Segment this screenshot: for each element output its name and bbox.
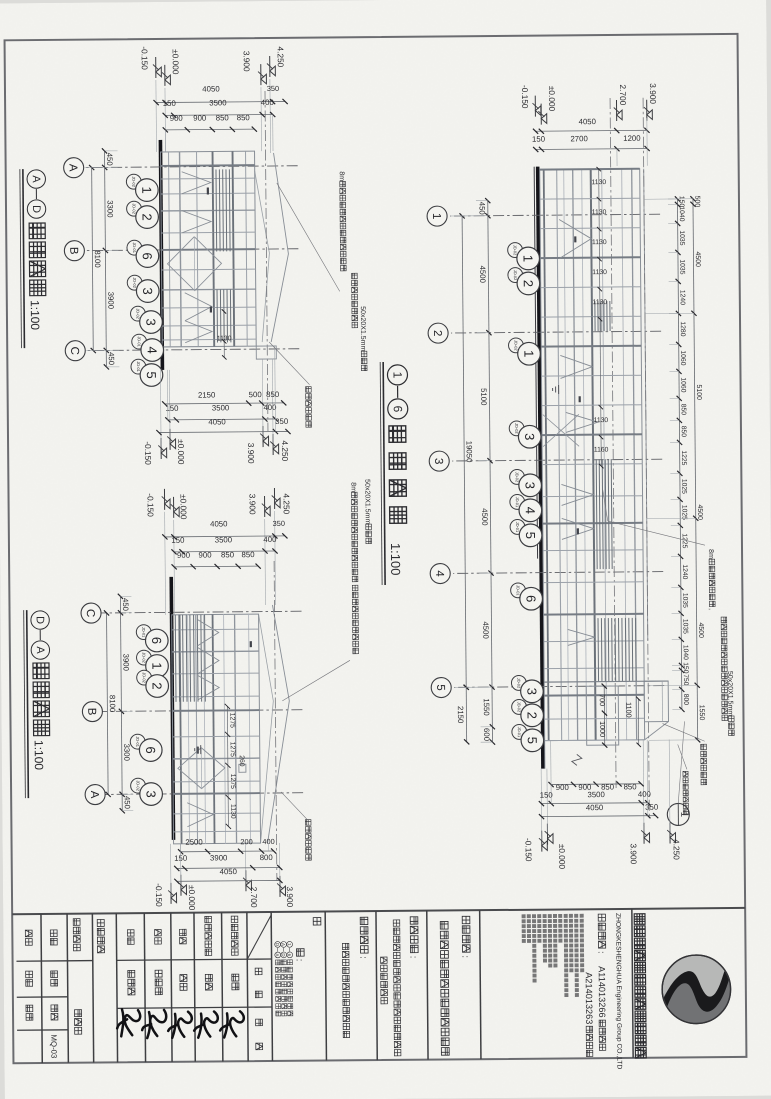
svg-text:4050: 4050 [220,867,238,876]
svg-text:750: 750 [682,674,689,686]
svg-text:150: 150 [174,854,188,863]
svg-text:3.900: 3.900 [246,443,256,464]
svg-text:8100: 8100 [93,250,102,268]
svg-text:850: 850 [241,550,255,559]
svg-text:2: 2 [139,213,154,220]
svg-text:A: A [275,953,280,956]
svg-text:A: A [34,646,46,654]
svg-text:4: 4 [523,507,538,514]
svg-text:D: D [34,616,46,624]
svg-text:3: 3 [432,458,444,465]
svg-text:900: 900 [556,783,570,792]
svg-text:4: 4 [145,346,160,353]
svg-text:2150: 2150 [198,390,216,399]
svg-text:1: 1 [521,255,536,262]
svg-text:900: 900 [177,551,191,560]
svg-text:900: 900 [193,114,207,123]
svg-text:6: 6 [391,405,405,412]
svg-text:JD-01: JD-01 [132,242,137,252]
svg-text:4500: 4500 [696,504,703,520]
svg-text:200: 200 [240,837,252,846]
svg-text:400: 400 [261,98,275,107]
svg-text:3300: 3300 [105,200,114,218]
svg-text:1275: 1275 [229,774,236,789]
svg-text:JD-01: JD-01 [136,361,141,371]
svg-text:1130: 1130 [593,299,608,306]
svg-text:900: 900 [198,551,212,560]
svg-text:1040: 1040 [682,645,689,660]
svg-text:4500: 4500 [694,251,701,267]
svg-text:2.700: 2.700 [618,84,628,105]
svg-text:3.900: 3.900 [242,51,252,72]
svg-text:850: 850 [680,426,687,438]
svg-text:850: 850 [237,113,251,122]
svg-text:2: 2 [150,682,165,689]
svg-text:B: B [85,708,97,716]
svg-text:-0.150: -0.150 [146,493,156,517]
svg-text:450: 450 [123,796,132,810]
svg-text:1130: 1130 [592,239,607,246]
svg-text:3: 3 [522,433,537,440]
svg-text:800: 800 [682,694,689,706]
svg-text:1: 1 [149,662,164,669]
svg-text:6: 6 [143,746,158,753]
svg-text:±0.000: ±0.000 [187,885,197,911]
svg-text:3300: 3300 [122,744,131,762]
svg-text:800: 800 [260,853,274,862]
svg-text:JD-02: JD-02 [132,203,137,213]
svg-text:ZHONGKESHENGHUA Engineering Gr: ZHONGKESHENGHUA Engineering Group CO.,LT… [614,913,622,1070]
svg-text::: : [597,951,607,954]
svg-text:6: 6 [140,252,155,259]
svg-text:1130: 1130 [592,209,607,216]
svg-text:JD-01: JD-01 [135,736,140,746]
svg-text:350: 350 [273,519,285,528]
svg-text:150: 150 [171,536,185,545]
svg-text:JD-02: JD-02 [131,176,136,186]
svg-text:1: 1 [678,812,689,817]
svg-text:1025: 1025 [680,479,687,494]
svg-text:1: 1 [521,350,536,357]
svg-text:3: 3 [523,482,538,489]
svg-text:-0.150: -0.150 [143,441,153,465]
svg-text:260: 260 [238,755,245,767]
svg-text:JD-02: JD-02 [516,678,521,688]
svg-text:3.900: 3.900 [648,83,658,104]
svg-text:850: 850 [680,404,687,416]
svg-text:JD-02: JD-02 [517,702,522,712]
svg-text:5: 5 [525,737,540,744]
svg-text:JD-02: JD-02 [135,308,140,318]
svg-text:JD-02: JD-02 [141,652,146,662]
svg-text:3: 3 [140,287,155,294]
svg-text:JD-02: JD-02 [513,270,518,280]
svg-text:D: D [281,953,286,956]
svg-text:JD-01: JD-01 [141,627,146,637]
svg-text:50x20X1.5mm: 50x20X1.5mm [359,306,366,351]
svg-text:5: 5 [144,371,159,378]
svg-text:JD-02: JD-02 [515,472,520,482]
svg-text:1200: 1200 [623,134,641,143]
svg-text:1240: 1240 [679,290,686,305]
svg-text:MQ-03: MQ-03 [49,1034,58,1058]
svg-text::: : [408,956,419,959]
svg-text:150: 150 [682,662,689,674]
svg-text:5: 5 [523,532,538,539]
svg-text:6: 6 [149,637,164,644]
svg-text:JD-01: JD-01 [515,522,520,532]
svg-text:1550: 1550 [482,698,491,716]
svg-text:2.700: 2.700 [249,887,259,908]
svg-text:600: 600 [482,728,491,742]
svg-text:4050: 4050 [202,84,220,93]
svg-text:1130: 1130 [592,269,607,276]
svg-text:1: 1 [139,186,154,193]
svg-text:4.250: 4.250 [280,440,290,461]
svg-text:8100: 8100 [108,695,117,713]
svg-text:1035: 1035 [681,619,688,634]
svg-text:,: , [708,608,715,610]
svg-text:3.900: 3.900 [285,886,295,907]
svg-text:19050: 19050 [465,441,474,463]
svg-text:450: 450 [107,352,116,366]
svg-text:-0.150: -0.150 [524,838,534,862]
svg-text:4.250: 4.250 [282,493,292,514]
svg-text:±0.000: ±0.000 [179,494,189,520]
svg-text:5100: 5100 [479,388,488,406]
svg-text:2500: 2500 [185,838,203,847]
svg-text:1130: 1130 [591,179,606,186]
svg-text:4: 4 [433,570,445,577]
svg-text:2700: 2700 [570,134,588,143]
svg-text:1275: 1275 [228,713,235,728]
svg-text:C: C [84,609,96,617]
svg-text:1035: 1035 [678,259,685,274]
svg-text:1280: 1280 [679,321,686,336]
svg-text:450: 450 [477,202,486,216]
svg-text:1: 1 [430,213,442,220]
svg-text:850: 850 [266,390,280,399]
svg-text:3900: 3900 [106,292,115,310]
svg-text:8m: 8m [707,549,714,559]
svg-text:3.900: 3.900 [629,843,639,864]
svg-text:900: 900 [170,114,184,123]
svg-text:1:100: 1:100 [388,543,403,576]
svg-text:1550: 1550 [698,705,705,721]
svg-text:1025: 1025 [680,505,687,520]
svg-text:1:100: 1:100 [28,300,42,330]
svg-text:700: 700 [598,694,607,706]
svg-text:3.900: 3.900 [248,494,258,515]
svg-text:8m: 8m [349,482,356,492]
svg-text:2150: 2150 [456,706,465,724]
svg-text:D: D [30,205,42,213]
svg-text:2: 2 [521,280,536,287]
svg-text:JD-02: JD-02 [142,672,147,682]
svg-text:JD-01: JD-01 [515,497,520,507]
svg-text:400: 400 [263,535,277,544]
svg-text:1060: 1060 [679,377,686,392]
svg-text:4.250: 4.250 [672,839,682,860]
svg-text:4500: 4500 [478,266,487,284]
svg-text:±0.000: ±0.000 [557,844,567,870]
svg-text:JD-01: JD-01 [516,585,521,595]
svg-text:4500: 4500 [697,622,704,638]
svg-text::: : [358,956,369,959]
svg-text:3500: 3500 [215,535,233,544]
svg-text:3500: 3500 [587,790,605,799]
svg-text:150: 150 [163,99,177,108]
svg-text:A: A [30,175,42,183]
svg-text:1: 1 [390,371,404,378]
svg-text:JD-01: JD-01 [137,336,142,346]
svg-text::: : [294,959,305,962]
svg-text:±0.000: ±0.000 [171,49,181,75]
svg-text:JD-02: JD-02 [132,277,137,287]
svg-text:1225: 1225 [681,533,688,548]
svg-text:±0.000: ±0.000 [176,439,186,465]
svg-text:50x20X1.5mm: 50x20X1.5mm [363,479,370,524]
svg-text:850: 850 [624,782,638,791]
svg-text:450: 450 [121,598,130,612]
svg-text:3900: 3900 [210,853,228,862]
svg-text:350: 350 [275,417,289,426]
svg-text:4050: 4050 [210,519,228,528]
svg-text:A: A [67,164,79,172]
svg-text:4500: 4500 [480,508,489,526]
svg-text:150: 150 [532,135,546,144]
svg-text:3: 3 [524,688,539,695]
svg-text:450: 450 [105,153,114,167]
svg-text:A: A [88,791,100,799]
svg-text:C: C [68,347,80,355]
svg-text:3500: 3500 [212,403,230,412]
svg-text:1160: 1160 [594,447,609,454]
svg-text:2: 2 [525,712,540,719]
svg-text:500: 500 [693,196,700,208]
svg-text:JD-01: JD-01 [517,727,522,737]
svg-text:A: A [281,943,286,946]
svg-text::: : [460,955,471,958]
svg-text:1100: 1100 [624,702,633,718]
svg-text:B: B [67,247,79,255]
svg-text:JD-02: JD-02 [513,340,518,350]
svg-text:5: 5 [434,684,446,691]
svg-text:3900: 3900 [121,654,130,672]
svg-text:1000: 1000 [598,721,607,737]
svg-text:1130: 1130 [217,335,232,342]
svg-text:6: 6 [524,595,539,602]
svg-text:1240: 1240 [681,564,688,579]
svg-text:3: 3 [143,318,158,325]
svg-text:D: D [275,943,280,946]
svg-text:JD-02: JD-02 [514,423,519,433]
svg-text:850: 850 [221,550,235,559]
svg-text:1060: 1060 [679,350,686,365]
svg-text:400: 400 [638,790,652,799]
svg-text:1130: 1130 [229,804,236,819]
svg-text:±0.000: ±0.000 [547,86,557,112]
svg-text:850: 850 [216,113,230,122]
svg-text:350: 350 [645,803,659,812]
svg-text:1035: 1035 [678,230,685,245]
svg-text:3500: 3500 [209,98,227,107]
svg-text:4500: 4500 [481,621,490,639]
svg-text:-0.150: -0.150 [520,85,530,109]
svg-text:2: 2 [431,330,443,337]
svg-text:-0.150: -0.150 [140,46,150,70]
svg-text:-0.150: -0.150 [154,883,164,907]
svg-text:JD-02: JD-02 [136,780,141,790]
svg-text:4050: 4050 [579,117,597,126]
svg-text:A114013266: A114013266 [597,966,607,1018]
svg-text:1040: 1040 [678,206,685,221]
svg-text:4050: 4050 [208,417,226,426]
svg-text:350: 350 [267,84,279,93]
svg-text:4.250: 4.250 [276,46,286,67]
svg-text:1130: 1130 [594,417,609,424]
svg-text:5100: 5100 [695,384,702,400]
svg-text:8m: 8m [338,171,345,181]
svg-text:1035: 1035 [681,593,688,608]
svg-text:1225: 1225 [680,450,687,465]
svg-text:JD-02: JD-02 [513,245,518,255]
svg-text:1:100: 1:100 [32,740,46,770]
svg-text:3: 3 [143,790,158,797]
svg-text:500: 500 [249,390,263,399]
svg-text:A214013263: A214013263 [584,972,594,1024]
svg-text:4050: 4050 [586,803,604,812]
svg-text:1275: 1275 [229,742,236,757]
